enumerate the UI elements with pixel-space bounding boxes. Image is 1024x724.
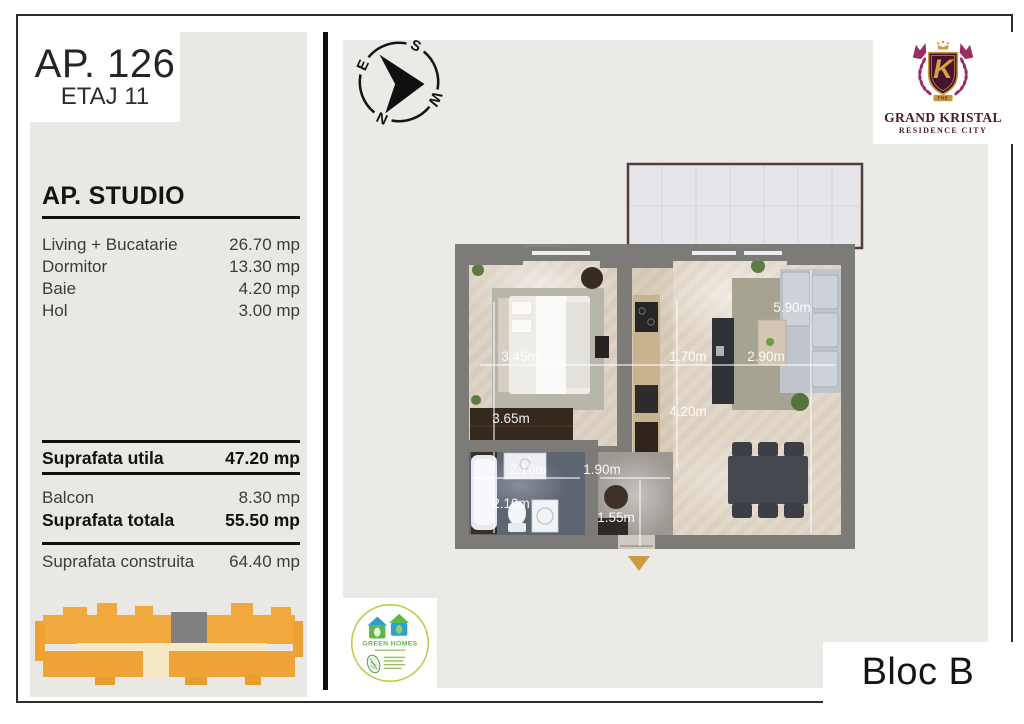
side-table	[595, 336, 609, 358]
entrance-arrow	[628, 556, 650, 571]
balcony-row: Balcon 8.30 mp	[42, 487, 300, 509]
bed-headboard	[498, 298, 509, 392]
compass-s: S	[408, 37, 424, 56]
total-area-label: Suprafata totala	[42, 509, 174, 531]
room-row: Baie 4.20 mp	[42, 278, 300, 300]
highlighted-unit	[171, 612, 207, 643]
totals-list: Balcon 8.30 mp Suprafata totala 55.50 mp	[42, 487, 300, 531]
dim-bedroom-height: 3.65m	[492, 411, 530, 426]
constructed-rule	[42, 542, 300, 545]
dim-kitchen-width: 1.70m	[669, 349, 707, 364]
dim-bath-width: 2.10m	[509, 462, 547, 477]
compass-icon: S W N E	[350, 33, 448, 131]
constructed-area-value: 64.40 mp	[229, 551, 300, 573]
room-value: 26.70 mp	[229, 234, 300, 256]
constructed-area-row: Suprafata construita 64.40 mp	[42, 551, 300, 573]
dim-hall-height: 1.55m	[597, 510, 635, 525]
kitchen-cabinet	[635, 422, 658, 452]
dim-bedroom-width: 3.45m	[501, 349, 539, 364]
brand-name: GRAND KRISTAL	[873, 110, 1013, 126]
plant	[791, 393, 809, 411]
shield-monogram: K	[933, 54, 955, 84]
apartment-number: AP. 126	[35, 44, 176, 84]
building-position-icon	[35, 599, 303, 695]
floor-label: ETAJ 11	[61, 84, 149, 110]
brand-subtitle: RESIDENCE CITY	[873, 126, 1013, 135]
washing-machine	[532, 500, 558, 532]
dim-hall-width: 1.90m	[583, 462, 621, 477]
dim-bath-height: 2.10m	[492, 496, 530, 511]
room-row: Hol 3.00 mp	[42, 300, 300, 322]
pegasus-left-icon	[913, 43, 927, 59]
kitchen-island	[712, 318, 734, 404]
pegasus-right-icon	[960, 43, 974, 59]
usable-area-row: Suprafata utila 47.20 mp	[42, 447, 300, 469]
floor-plan: 3.45m 1.70m 2.90m 5.90m 4.20m 3.65m 2.10…	[440, 150, 890, 580]
entrance-door	[618, 535, 655, 549]
block-label-box: Bloc B	[823, 642, 1013, 703]
usable-area-label: Suprafata utila	[42, 447, 164, 469]
eco-logo-box: GREEN HOMES	[343, 598, 437, 688]
apartment-header: AP. 126 ETAJ 11	[30, 32, 180, 122]
plant	[751, 259, 765, 273]
summary-rule-bottom	[42, 472, 300, 475]
dim-mid-height: 4.20m	[669, 404, 707, 419]
left-info-panel	[30, 32, 307, 697]
living-room	[652, 243, 841, 535]
dim-living-width: 2.90m	[747, 349, 785, 364]
armchair	[581, 267, 603, 289]
kitchen-cabinet	[635, 385, 658, 413]
pillow	[511, 301, 532, 315]
plant	[471, 395, 481, 405]
room-value: 3.00 mp	[239, 300, 300, 322]
blanket	[566, 302, 590, 388]
vertical-divider	[323, 32, 328, 690]
table-plant	[766, 338, 774, 346]
duvet	[536, 296, 566, 394]
room-areas-list: Living + Bucatarie 26.70 mp Dormitor 13.…	[42, 234, 300, 322]
room-label: Baie	[42, 278, 76, 300]
hall-pouf	[604, 485, 628, 509]
green-homes-logo: GREEN HOMES	[349, 602, 431, 684]
room-value: 4.20 mp	[239, 278, 300, 300]
balcony-value: 8.30 mp	[239, 487, 300, 509]
eco-title: GREEN HOMES	[362, 641, 417, 648]
building-silhouette	[35, 603, 303, 685]
balcony-label: Balcon	[42, 487, 94, 509]
ribbon-text: THE	[937, 96, 948, 101]
room-row: Dormitor 13.30 mp	[42, 256, 300, 278]
bedroom	[462, 240, 618, 446]
usable-area-value: 47.20 mp	[225, 447, 300, 469]
room-label: Living + Bucatarie	[42, 234, 178, 256]
brand-crest: K THE	[895, 40, 991, 110]
dining-set	[728, 442, 808, 518]
summary-rule-top	[42, 440, 300, 443]
crown-icon	[937, 41, 949, 50]
flyer-page: { "left_panel": { "apartment": "AP. 126"…	[0, 0, 1024, 724]
room-row: Living + Bucatarie 26.70 mp	[42, 234, 300, 256]
compass-e: E	[354, 57, 373, 73]
compass-needle	[379, 55, 424, 114]
apartment-type-title: AP. STUDIO	[42, 182, 185, 211]
room-value: 13.30 mp	[229, 256, 300, 278]
plant	[472, 264, 484, 276]
balcony	[628, 164, 862, 248]
room-label: Hol	[42, 300, 68, 322]
block-label: Bloc B	[862, 651, 975, 694]
title-underline	[42, 216, 300, 219]
constructed-area-label: Suprafata construita	[42, 551, 194, 573]
pillow	[511, 319, 532, 333]
dim-living-height: 5.90m	[773, 300, 811, 315]
room-label: Dormitor	[42, 256, 107, 278]
total-area-value: 55.50 mp	[225, 509, 300, 531]
compass-w: W	[424, 89, 444, 108]
total-area-row: Suprafata totala 55.50 mp	[42, 509, 300, 531]
